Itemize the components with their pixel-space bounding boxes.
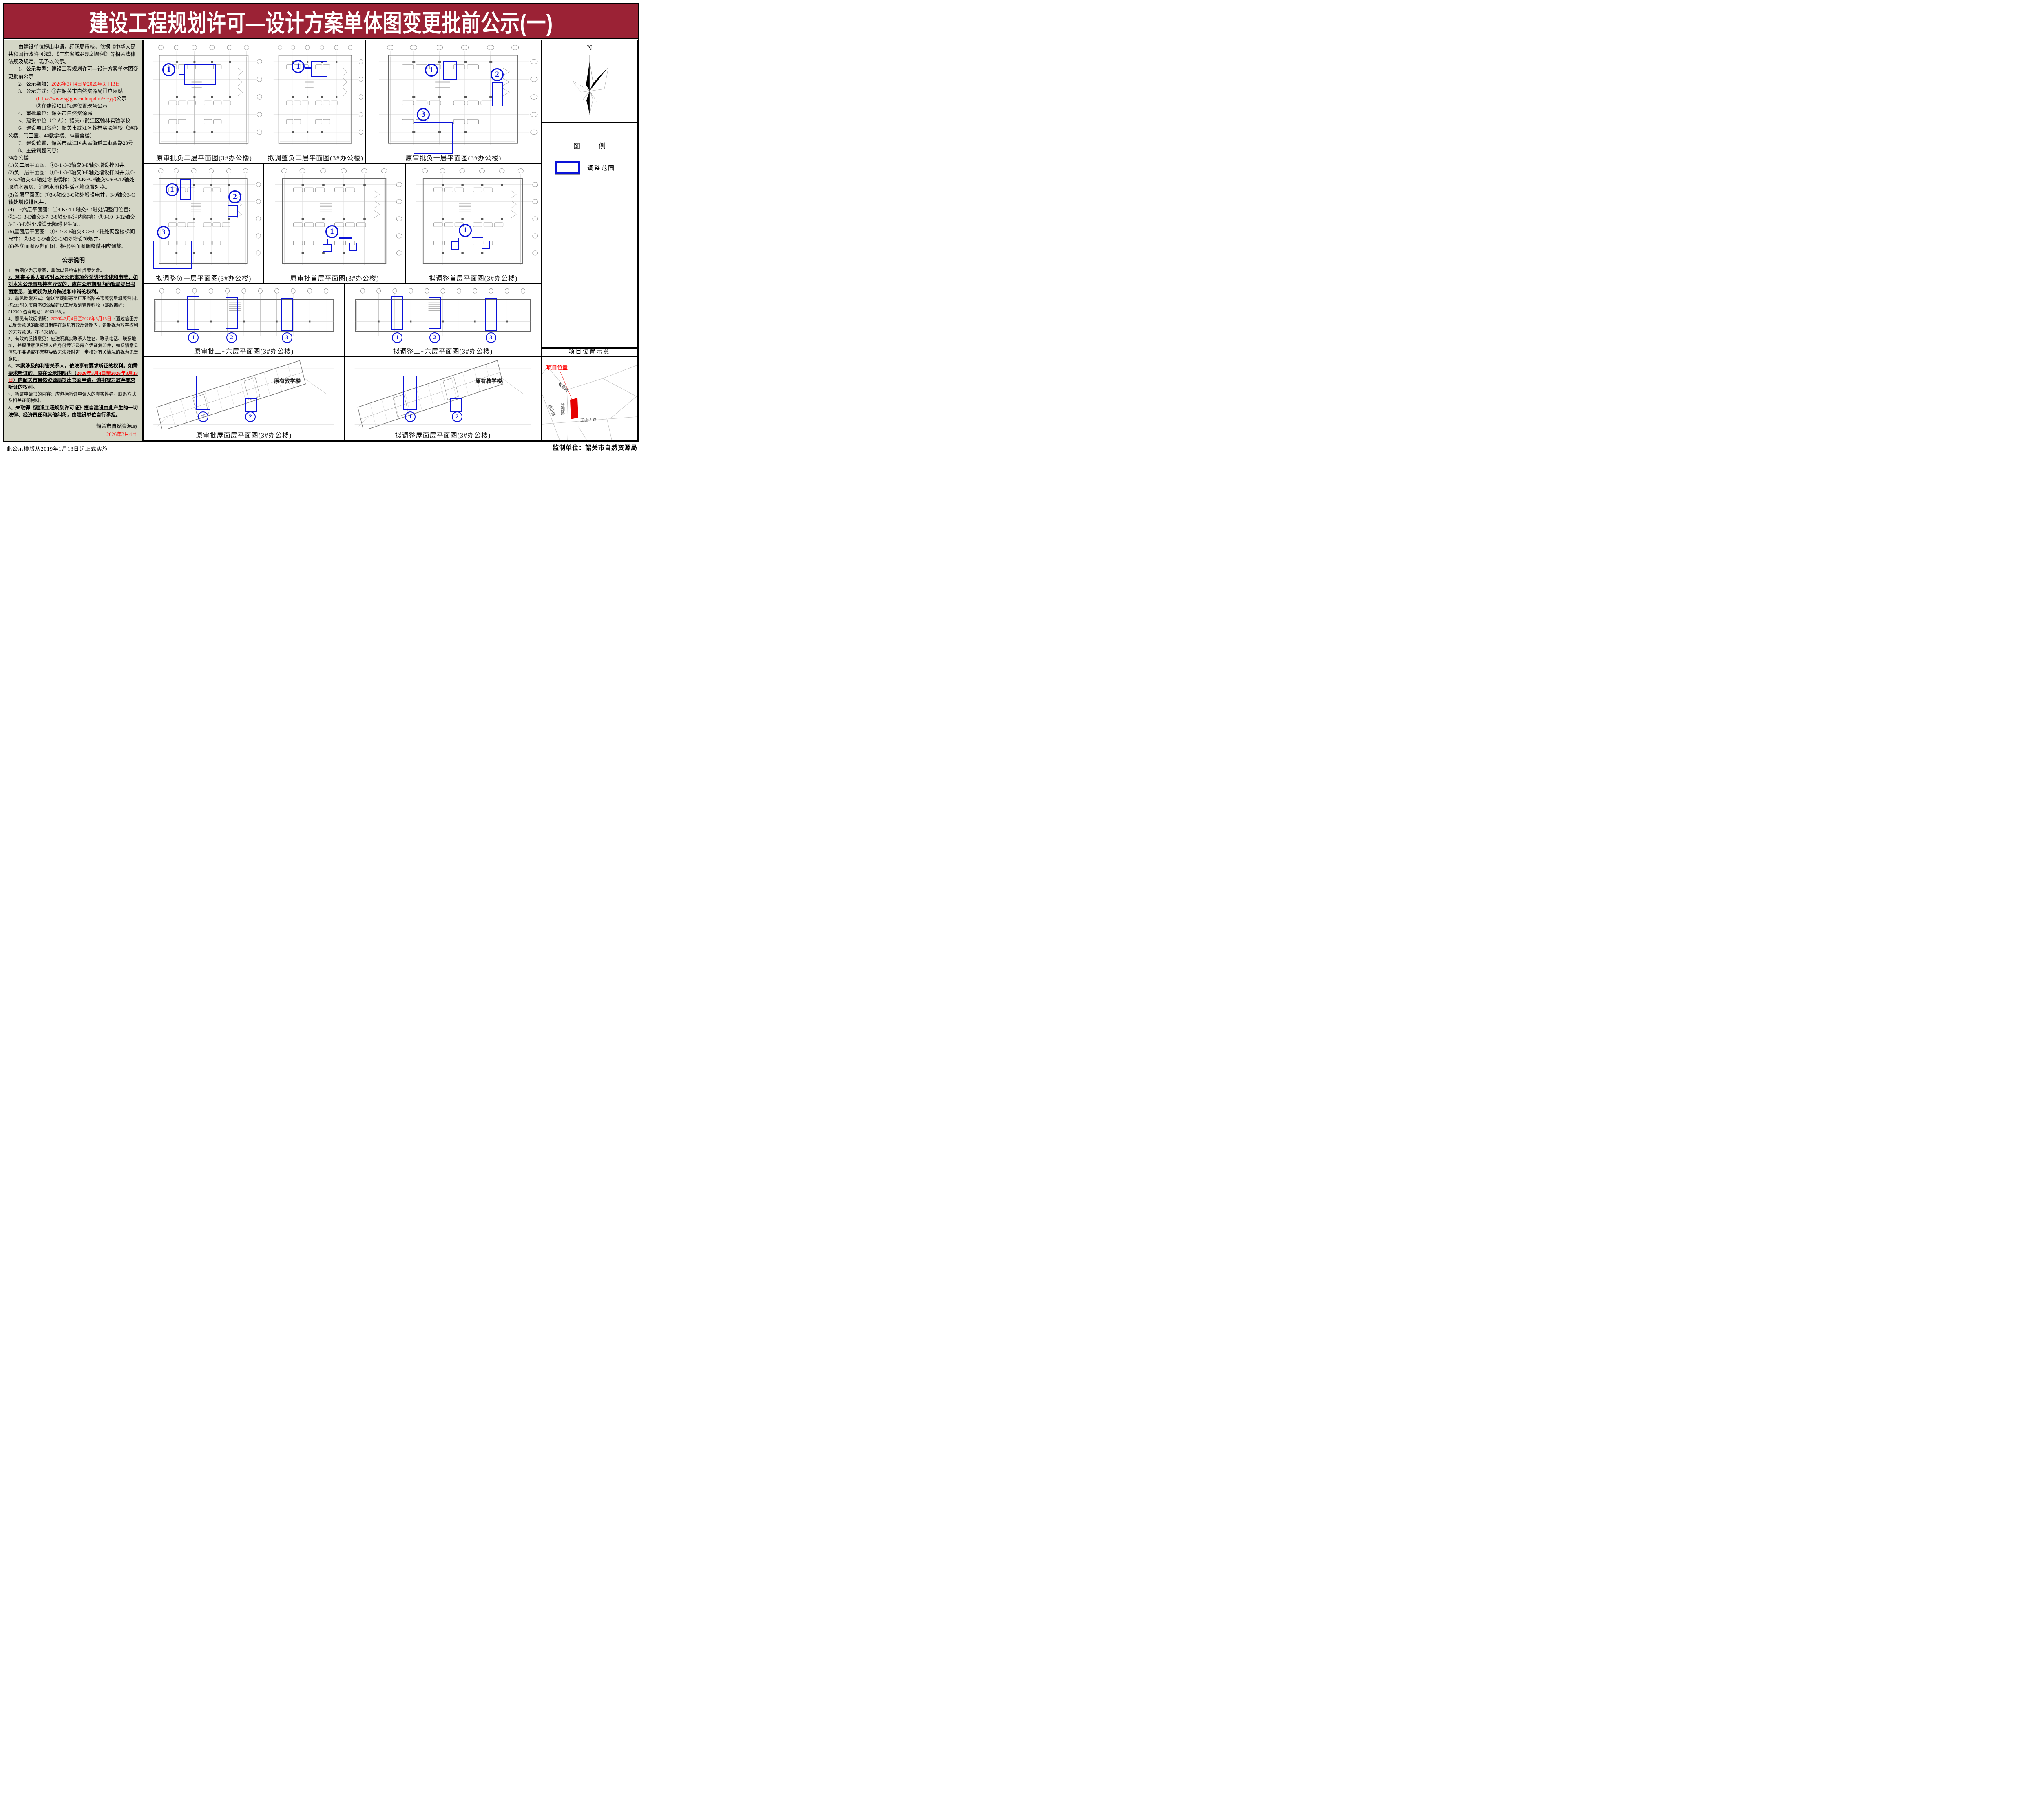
notice-item-5: 5、建设单位（个人）：韶关市武江区翰林实验学校 [8, 117, 139, 124]
adjust-rect [391, 296, 403, 330]
adjust-marker: 2 [491, 68, 504, 81]
notice-sheet: 建设工程规划许可—设计方案单体图变更批前公示(一) 由建设单位提出申请，经我局审… [0, 0, 643, 455]
note-1: 1、右图仅为示意图，具体以最终审批成果为准。 [8, 268, 139, 274]
location-map-drawing: 项目位置 教育路 稔山路 沙湖路 工业西路 [542, 357, 637, 440]
road-label-jiaoyu: 教育路 [557, 381, 570, 393]
floor-plan-drawing [347, 359, 539, 429]
notice-intro: 由建设单位提出申请，经我局审核，依据《中华人民共和国行政许可法》、《广东省城乡规… [8, 43, 139, 65]
panel-basement1-approved: 1 2 3 原审批负一层平面图(3#办公楼) [366, 40, 541, 164]
existing-building-label: 原有教学楼 [274, 377, 301, 385]
floor-plan-drawing [347, 286, 539, 345]
panel-roof-approved: 原有教学楼 1 2 原审批屋面层平面图(3#办公楼) [143, 357, 345, 441]
marker-leader [458, 238, 459, 242]
adjust-rect [451, 241, 459, 250]
adjust-rect [323, 244, 332, 252]
notice-item-3-url: (https://www.sg.gov.cn/bmpdlm/zrzyj/)公示 [8, 95, 139, 102]
adjust-b6: (6)各立面图及剖面图：根据平面图调整做相应调整。 [8, 243, 139, 250]
adjust-marker: 2 [228, 190, 241, 203]
signature-date: 2026年3月4日 [8, 430, 137, 438]
marker-leader [179, 74, 185, 75]
road-label-gongyexi: 工业西路 [580, 417, 597, 423]
adjust-marker: 1 [162, 63, 175, 76]
panel-floors2-6-adjusted: 1 2 3 拟调整二~六层平面图(3#办公楼) [345, 284, 541, 357]
adjust-rect [485, 298, 497, 331]
panel-floors2-6-approved: 1 2 3 原审批二~六层平面图(3#办公楼) [143, 284, 345, 357]
adjust-rect [349, 243, 357, 251]
footer-supervisor: 监制单位：韶关市自然资源局 [553, 443, 637, 452]
note-8: 8、未取得《建设工程规划许可证》擅自建设由此产生的一切法律、经济责任和其他纠纷，… [8, 405, 139, 419]
adjust-b5: (5)屋面层平面图：①3-4~3-6轴交3-C~3-E轴处调整楼梯间尺寸；②3-… [8, 228, 139, 243]
title-banner: 建设工程规划许可—设计方案单体图变更批前公示(一) [4, 4, 638, 39]
floor-plan-drawing [266, 166, 403, 272]
adjust-rect [228, 205, 238, 217]
adjust-rect [429, 297, 441, 329]
legend-panel: 图 例 调整范围 [541, 123, 638, 347]
adjust-b2: (2)负一层平面图：①3-1~3-3轴交3-E轴处增设排风井;②3-5~3-7轴… [8, 169, 139, 191]
note-7: 7、听证申请书的内容：应包括听证申请人的真实姓名，联系方式及相关证明材料。 [8, 391, 139, 405]
adjust-rect [153, 241, 192, 269]
notice-item-3: 3、公示方式：①在韶关市自然资源局门户网站 [8, 88, 139, 95]
floor-plan-drawing [407, 166, 539, 272]
adjust-marker: 1 [292, 60, 305, 73]
notice-item-8: 8、主要调整内容： [8, 147, 139, 154]
notice-item-7: 7、建设位置：韶关市武江区惠民街道工业西路28号 [8, 139, 139, 147]
panel-basement2-approved: 1 原审批负二层平面图(3#办公楼) [143, 40, 265, 164]
adjust-rect [311, 61, 327, 77]
adjust-marker: 1 [198, 411, 208, 422]
gov-site-url: (https://www.sg.gov.cn/bmpdlm/zrzyj/) [36, 96, 117, 102]
panel-roof-adjusted: 原有教学楼 1 2 拟调整屋面层平面图(3#办公楼) [345, 357, 541, 441]
panel-ground-adjusted: 1 拟调整首层平面图(3#办公楼) [405, 164, 541, 284]
note-3: 3、意见反馈方式：请送至或邮寄至广东省韶关市芙蓉新城芙蓉园1栋203韶关市自然资… [8, 295, 139, 316]
floor-plan-drawing [368, 42, 539, 152]
adjust-marker: 2 [245, 411, 256, 422]
adjust-rect [450, 398, 462, 412]
notice-text-panel: 由建设单位提出申请，经我局审核，依据《中华人民共和国行政许可法》、《广东省城乡规… [4, 40, 143, 441]
plan-caption: 原审批负一层平面图(3#办公楼) [366, 153, 541, 162]
panel-basement2-adjusted: 1 拟调整负二层平面图(3#办公楼) [265, 40, 366, 164]
notice-item-1: 1、公示类型：建设工程规划许可—设计方案单体图变更批前公示 [8, 65, 139, 80]
plan-caption: 原审批首层平面图(3#办公楼) [264, 273, 405, 283]
floor-plan-drawing [145, 42, 263, 152]
plan-caption: 拟调整二~六层平面图(3#办公楼) [345, 346, 541, 356]
compass-rose-icon [565, 52, 614, 117]
north-label: N [542, 44, 637, 52]
plan-caption: 原审批二~六层平面图(3#办公楼) [144, 346, 344, 356]
adjust-rect [482, 241, 490, 249]
marker-leader [327, 239, 328, 244]
notes-section: 公示说明 1、右图仅为示意图，具体以最终审批成果为准。 2、利害关系人有权对本次… [8, 256, 139, 438]
adjust-marker: 3 [417, 108, 430, 121]
legend-title: 图 例 [542, 140, 637, 150]
adjust-rect [226, 297, 238, 329]
adjust-rect [196, 376, 210, 410]
plan-caption: 拟调整首层平面图(3#办公楼) [406, 273, 541, 283]
adjust-marker: 3 [282, 332, 292, 343]
adjust-rect [414, 122, 453, 154]
floor-plan-drawing [145, 359, 343, 429]
page-title: 建设工程规划许可—设计方案单体图变更批前公示(一) [89, 3, 553, 38]
adjust-marker: 1 [188, 332, 199, 343]
location-map: 项目位置 教育路 稔山路 沙湖路 工业西路 [541, 357, 638, 441]
building-heading: 3#办公楼 [8, 154, 139, 161]
location-panel-title: 项目位置示意 [541, 347, 638, 357]
adjust-rect [184, 64, 216, 85]
plan-caption: 原审批屋面层平面图(3#办公楼) [144, 430, 344, 440]
plan-caption: 拟调整屋面层平面图(3#办公楼) [345, 430, 541, 440]
adjust-rect [187, 296, 199, 330]
adjust-marker: 1 [392, 332, 402, 343]
adjust-marker: 1 [166, 183, 179, 196]
road-label-shahu: 沙湖路 [560, 403, 565, 416]
adjust-marker: 3 [486, 332, 496, 343]
adjust-rect [180, 179, 191, 200]
floor-plan-drawing [145, 286, 343, 345]
note-2: 2、利害关系人有权对本次公示事项依法进行陈述和申辩，如对本次公示事项持有异议的，… [8, 274, 139, 295]
plan-caption: 拟调整负一层平面图(3#办公楼) [144, 273, 263, 283]
existing-building-label: 原有教学楼 [475, 377, 502, 385]
adjust-b3: (3)首层平面图：①3-6轴交3-C轴处增设电井，3-9轴交3-C轴处增设排风井… [8, 191, 139, 206]
marker-leader [339, 237, 352, 239]
note-6: 6、本案涉及的利害关系人，依法享有要求听证的权利。如需要求听证的，应在公示期限内… [8, 363, 139, 391]
signature-block: 韶关市自然资源局 2026年3月4日 [8, 422, 139, 438]
marker-leader [472, 237, 483, 238]
adjust-marker: 1 [325, 225, 338, 238]
adjust-rect [443, 61, 457, 80]
panel-basement1-adjusted: 1 2 3 拟调整负一层平面图(3#办公楼) [143, 164, 264, 284]
adjust-marker: 2 [226, 332, 237, 343]
publicity-period: 2026年3月4日至2026年3月13日 [51, 81, 120, 87]
adjust-b1: (1)负二层平面图：①3-1~3-3轴交3-E轴处增设排风井。 [8, 161, 139, 169]
note-5: 5、有效的反馈意见：应注明真实联系人姓名、联系电话、联系地址，并提供意见反馈人的… [8, 336, 139, 363]
adjust-rect [281, 298, 293, 331]
notice-item-3-line2: ②在建设项目拟建位置现场公示 [8, 102, 139, 110]
compass-panel: N [541, 40, 638, 123]
project-parcel [570, 398, 578, 419]
adjust-b4: (4)二~六层平面图：①4-K~4-L轴交3-4轴处调整门位置；②3-C~3-E… [8, 206, 139, 228]
marker-leader [305, 67, 312, 69]
plan-caption: 拟调整负二层平面图(3#办公楼) [265, 153, 365, 162]
adjust-marker: 3 [157, 226, 170, 239]
adjust-marker: 2 [429, 332, 440, 343]
adjust-marker: 2 [452, 411, 462, 422]
adjust-marker: 1 [459, 224, 472, 237]
adjust-range-swatch [555, 161, 580, 174]
panel-ground-approved: 1 原审批首层平面图(3#办公楼) [264, 164, 405, 284]
adjust-rect [492, 82, 503, 106]
adjust-marker: 1 [425, 64, 438, 77]
legend-item-label: 调整范围 [587, 164, 615, 172]
footer-template-note: 此公示模版从2019年1月18日起正式实施 [7, 444, 108, 452]
project-location-label: 项目位置 [546, 365, 568, 371]
notes-heading: 公示说明 [8, 256, 139, 264]
plan-caption: 原审批负二层平面图(3#办公楼) [144, 153, 265, 162]
note-4: 4、意见有效反馈期：2026年3月4日至2026年3月13日（通过信函方式反馈意… [8, 316, 139, 336]
adjust-rect [245, 398, 257, 412]
legend-row: 调整范围 [555, 161, 637, 174]
feedback-period: 2026年3月4日至2026年3月13日 [51, 316, 112, 321]
notice-item-4: 4、审批单位：韶关市自然资源局 [8, 110, 139, 117]
signature-org: 韶关市自然资源局 [8, 422, 137, 430]
adjust-rect [403, 376, 417, 410]
adjust-marker: 1 [405, 411, 416, 422]
notice-item-6: 6、建设项目名称：韶关市武江区翰林实验学校（3#办公楼、门卫室、4#教学楼、5#… [8, 124, 139, 139]
floor-plan-drawing [267, 42, 364, 152]
notice-item-2: 2、公示期限：2026年3月4日至2026年3月13日 [8, 80, 139, 88]
